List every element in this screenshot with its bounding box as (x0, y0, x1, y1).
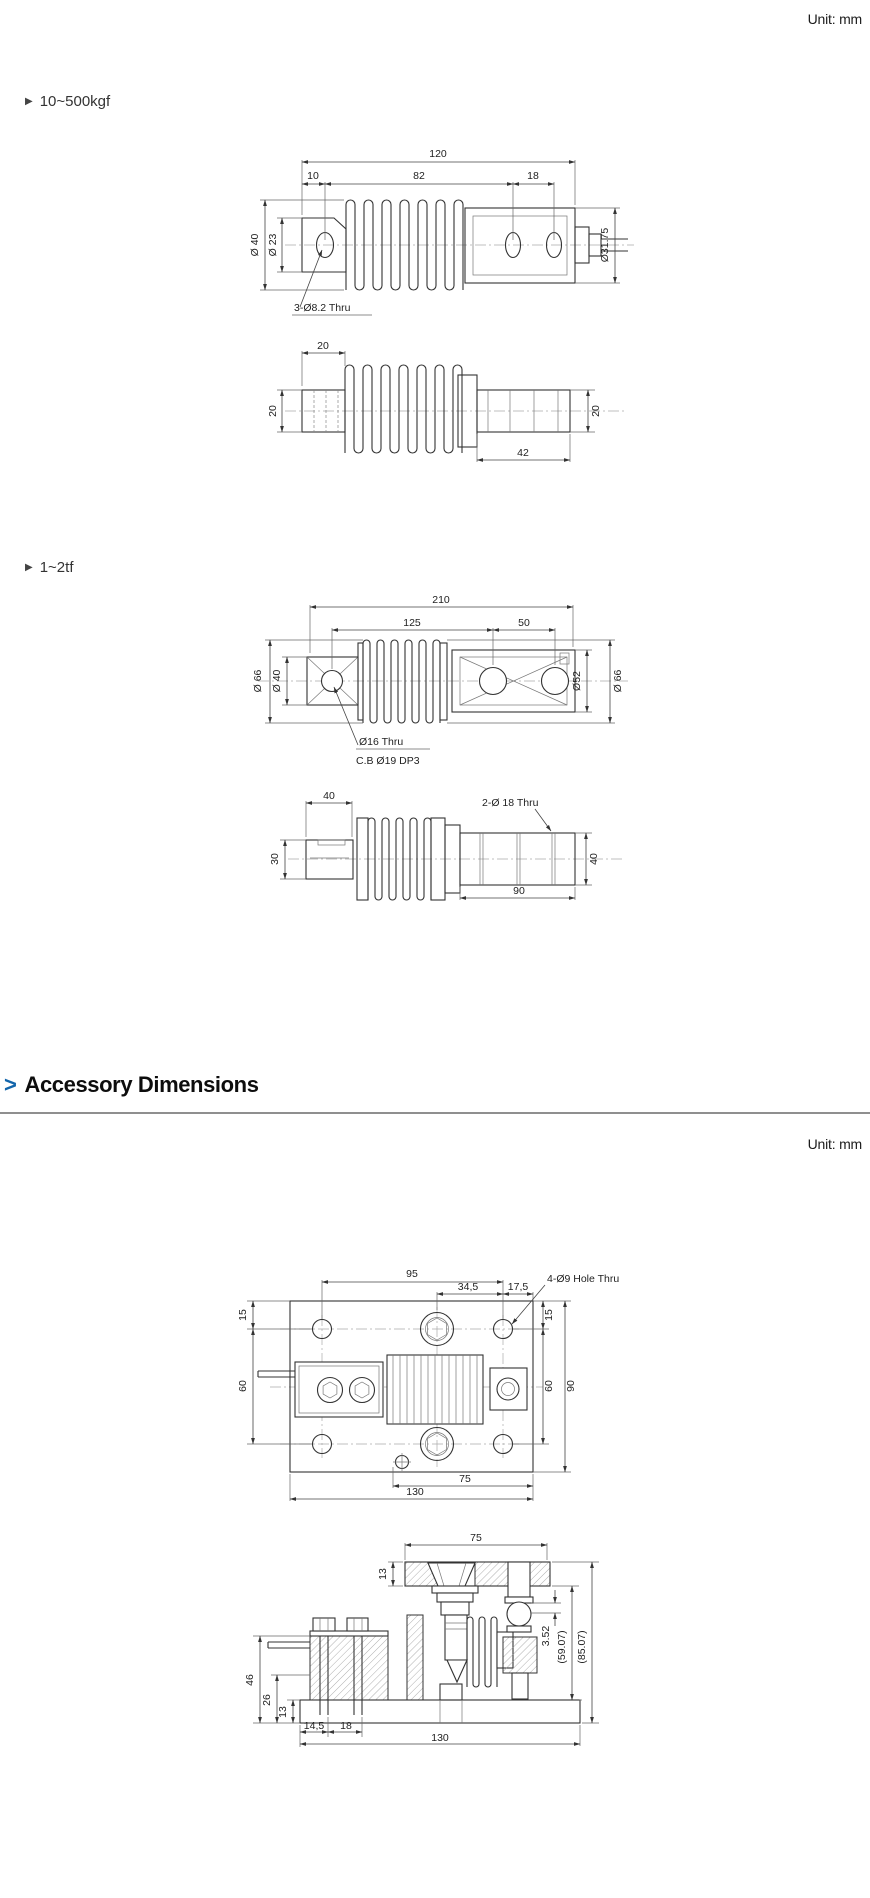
triangle-bullet-icon: ▶ (25, 97, 33, 107)
bolt-head-2 (347, 1618, 368, 1631)
dim-75: 75 (470, 1532, 482, 1544)
dim-right: 20 (590, 405, 602, 417)
section-range2-text: 1~2tf (40, 559, 74, 576)
dim-seg2: 50 (518, 617, 530, 629)
hole-note-2: C.B Ø19 DP3 (356, 755, 420, 767)
section-divider (0, 1112, 870, 1114)
cable (268, 1642, 310, 1648)
bolt-head-1 (313, 1618, 335, 1631)
bellows (363, 640, 440, 723)
dim-dia3175: Ø31.75 (599, 228, 611, 263)
left-body (295, 1362, 383, 1417)
bellows-plan (387, 1355, 483, 1424)
dim-seg1: 125 (403, 617, 421, 629)
dim-bottom: 90 (513, 885, 525, 897)
dim-130: 130 (406, 1486, 424, 1498)
dim-85-07: (85.07) (576, 1630, 588, 1663)
dimensions: 120 10 82 18 Ø 40 Ø 23 Ø31.75 3-Ø8.2 Thr… (249, 148, 620, 315)
dim-right: 40 (588, 853, 600, 865)
right-hole-2 (542, 668, 569, 695)
drawing-tf-side-view: 210 125 50 Ø 66 Ø 40 Ø52 Ø 66 Ø16 Thru C… (230, 595, 650, 780)
drawing-tf-top-view: 40 2-Ø 18 Thru 30 40 90 (230, 785, 650, 915)
hole-note-1: Ø16 Thru (359, 736, 403, 748)
dim-left: 30 (269, 853, 281, 865)
accessory-dimensions-heading: > Accessory Dimensions (4, 1072, 259, 1098)
dim-dia52: Ø52 (571, 671, 583, 691)
unit-label-accessory: Unit: mm (808, 1136, 862, 1152)
load-cell-body (307, 640, 575, 723)
flange-right (440, 643, 447, 720)
dim-overall: 210 (432, 594, 450, 606)
section-bracket (407, 1615, 423, 1700)
right-connector (490, 1368, 527, 1410)
dim-dia66-right: Ø 66 (612, 669, 624, 692)
dim-plate-13: 13 (377, 1568, 389, 1580)
dim-26: 26 (261, 1694, 273, 1706)
dim-overall: 120 (429, 148, 447, 160)
dim-95: 95 (406, 1268, 418, 1280)
dim-top: 20 (317, 340, 329, 352)
ball-joint (507, 1602, 531, 1626)
load-cell-body (302, 365, 570, 453)
right-hole-1 (480, 668, 507, 695)
dim-46: 46 (244, 1674, 256, 1686)
assembly (268, 1562, 580, 1723)
heading-gt-marker: > (4, 1072, 16, 1098)
unit-label-top: Unit: mm (808, 11, 862, 27)
dim-bottom: 42 (517, 447, 529, 459)
dim-130: 130 (431, 1732, 449, 1744)
dim-left-60: 60 (237, 1380, 249, 1392)
dim-right-90: 90 (565, 1380, 577, 1392)
drawing-accessory-side-view: 75 13 46 26 13 3.52 (59.07) (85.07) (225, 1532, 660, 1760)
section-label-10-500kgf: ▶ 10~500kgf (25, 93, 110, 110)
dim-seg2: 82 (413, 170, 425, 182)
hole-note: 4-Ø9 Hole Thru (547, 1273, 619, 1285)
left-shaft (306, 840, 353, 879)
dim-34-5: 34,5 (458, 1281, 479, 1293)
dim-59-07: (59.07) (556, 1630, 568, 1663)
left-mount-hole (322, 671, 343, 692)
dim-top: 40 (323, 790, 335, 802)
top-plate-mid (475, 1562, 508, 1586)
drawing-accessory-plan-view: 95 34,5 17,5 4-Ø9 Hole Thru 15 60 15 60 … (225, 1235, 660, 1510)
drawing-kgf-top-view: 20 20 20 42 (230, 340, 640, 475)
section-label-1-2tf: ▶ 1~2tf (25, 559, 73, 576)
dim-18: 18 (340, 1720, 352, 1732)
section-range1-text: 10~500kgf (40, 93, 110, 110)
top-plate-right (530, 1562, 550, 1586)
dim-17-5: 17,5 (508, 1281, 529, 1293)
dim-14-5: 14,5 (304, 1720, 325, 1732)
dim-3-52: 3.52 (540, 1626, 552, 1647)
load-cell-plan (258, 1355, 527, 1424)
datasheet-page: Unit: mm ▶ 10~500kgf 120 10 (0, 0, 870, 1898)
dim-13: 13 (277, 1706, 289, 1718)
bellows (345, 365, 462, 453)
dim-dia40: Ø 40 (249, 233, 261, 256)
heading-text: Accessory Dimensions (24, 1072, 258, 1098)
dim-seg3: 18 (527, 170, 539, 182)
dim-right-15: 15 (543, 1309, 555, 1321)
dim-dia66-left: Ø 66 (252, 669, 264, 692)
center-bolt-stack (432, 1586, 478, 1700)
bellows (467, 1617, 497, 1687)
dim-left-15: 15 (237, 1309, 249, 1321)
triangle-bullet-icon: ▶ (25, 563, 33, 573)
dim-left: 20 (267, 405, 279, 417)
dim-seg1: 10 (307, 170, 319, 182)
flange-left (358, 643, 363, 720)
hole-note: 3-Ø8.2 Thru (294, 302, 351, 314)
drawing-kgf-side-view: 120 10 82 18 Ø 40 Ø 23 Ø31.75 3-Ø8.2 Thr… (230, 115, 650, 327)
dim-right-60: 60 (543, 1380, 555, 1392)
hole-note: 2-Ø 18 Thru (482, 797, 539, 809)
dim-75: 75 (459, 1473, 471, 1485)
dim-dia40: Ø 40 (271, 669, 283, 692)
dim-dia23: Ø 23 (267, 233, 279, 256)
